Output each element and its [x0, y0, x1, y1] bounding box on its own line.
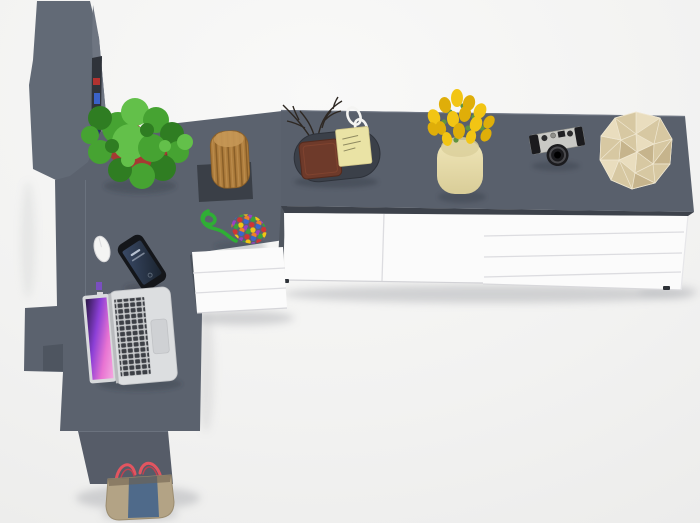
camera-viewfinder: [558, 130, 566, 137]
render-scene: [0, 0, 700, 523]
pedestal-drawers: [192, 247, 287, 313]
sideboard-drawers: [483, 215, 688, 290]
laptop-trackpad: [151, 319, 170, 354]
desk-left-step: [43, 344, 63, 371]
pedestal-front: [192, 247, 287, 313]
open-laptop: [82, 286, 178, 387]
scene-canvas: [0, 0, 700, 523]
sticky-notes: [335, 126, 372, 166]
sideboard-foot-right: [663, 286, 670, 290]
